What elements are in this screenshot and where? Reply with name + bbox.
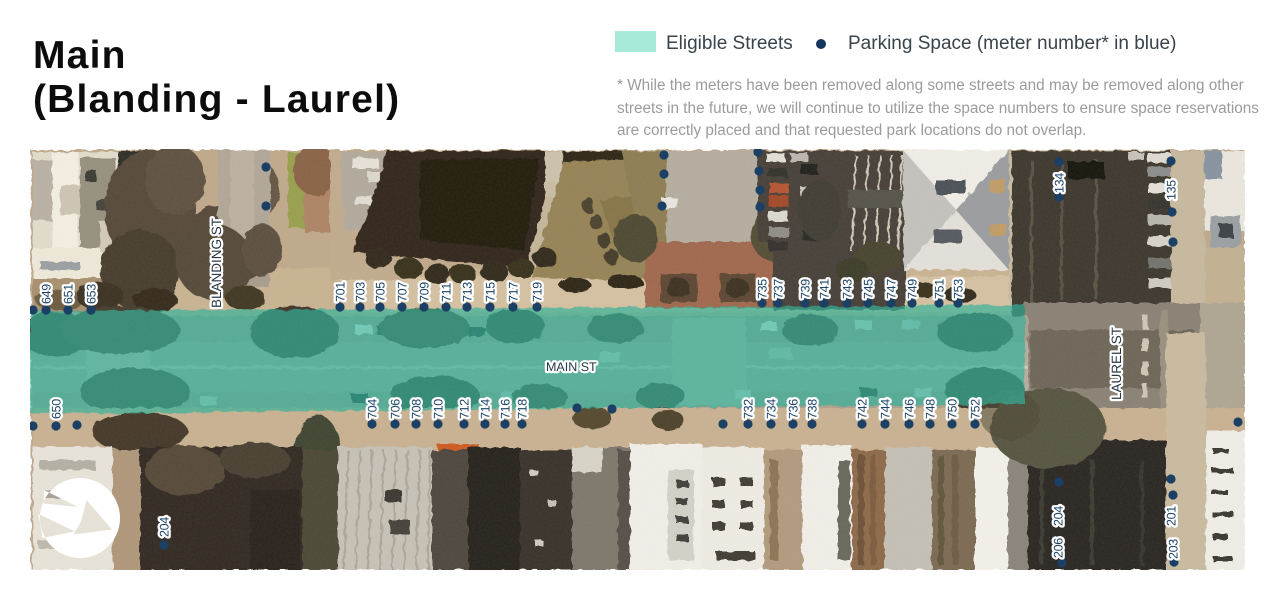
svg-text:706: 706 <box>389 399 403 419</box>
svg-text:201: 201 <box>1165 506 1179 526</box>
svg-text:739: 739 <box>799 279 813 299</box>
svg-text:LAUREL ST: LAUREL ST <box>1109 327 1124 400</box>
svg-text:134: 134 <box>1053 173 1067 193</box>
svg-text:748: 748 <box>924 399 938 419</box>
svg-text:713: 713 <box>461 282 475 302</box>
svg-text:745: 745 <box>862 279 876 299</box>
svg-text:649: 649 <box>40 284 54 304</box>
svg-text:204: 204 <box>1052 506 1066 526</box>
svg-text:734: 734 <box>765 399 779 419</box>
svg-text:752: 752 <box>969 399 983 419</box>
svg-text:206: 206 <box>1052 538 1066 558</box>
svg-text:741: 741 <box>818 279 832 299</box>
svg-text:747: 747 <box>885 279 899 299</box>
svg-text:746: 746 <box>903 399 917 419</box>
svg-text:711: 711 <box>440 283 454 302</box>
svg-text:714: 714 <box>479 399 493 419</box>
svg-text:651: 651 <box>62 284 76 304</box>
svg-text:716: 716 <box>499 399 513 419</box>
svg-text:750: 750 <box>946 399 960 419</box>
svg-text:735: 735 <box>756 279 770 299</box>
svg-text:709: 709 <box>418 282 432 302</box>
svg-text:749: 749 <box>906 279 920 299</box>
svg-text:738: 738 <box>806 399 820 419</box>
svg-text:708: 708 <box>410 399 424 419</box>
svg-text:701: 701 <box>334 282 348 302</box>
svg-text:135: 135 <box>1165 180 1179 200</box>
svg-text:717: 717 <box>507 282 521 302</box>
svg-text:736: 736 <box>787 399 801 419</box>
svg-text:707: 707 <box>396 282 410 302</box>
svg-text:703: 703 <box>354 282 368 302</box>
svg-text:742: 742 <box>856 399 870 419</box>
svg-text:650: 650 <box>50 399 64 419</box>
svg-text:710: 710 <box>432 399 446 419</box>
svg-text:719: 719 <box>531 282 545 302</box>
svg-text:743: 743 <box>841 279 855 299</box>
svg-text:718: 718 <box>516 399 530 419</box>
svg-text:751: 751 <box>933 279 947 299</box>
svg-text:705: 705 <box>374 282 388 302</box>
svg-text:744: 744 <box>879 399 893 419</box>
svg-text:712: 712 <box>458 399 472 419</box>
svg-text:715: 715 <box>484 282 498 302</box>
svg-text:MAIN ST: MAIN ST <box>546 360 597 374</box>
svg-text:203: 203 <box>1167 539 1181 559</box>
svg-text:704: 704 <box>366 399 380 419</box>
svg-text:737: 737 <box>772 279 786 299</box>
svg-text:753: 753 <box>952 279 966 299</box>
svg-text:BLANDING ST: BLANDING ST <box>209 218 224 308</box>
svg-text:204: 204 <box>158 517 172 537</box>
svg-text:732: 732 <box>742 399 756 419</box>
svg-text:653: 653 <box>85 284 99 304</box>
